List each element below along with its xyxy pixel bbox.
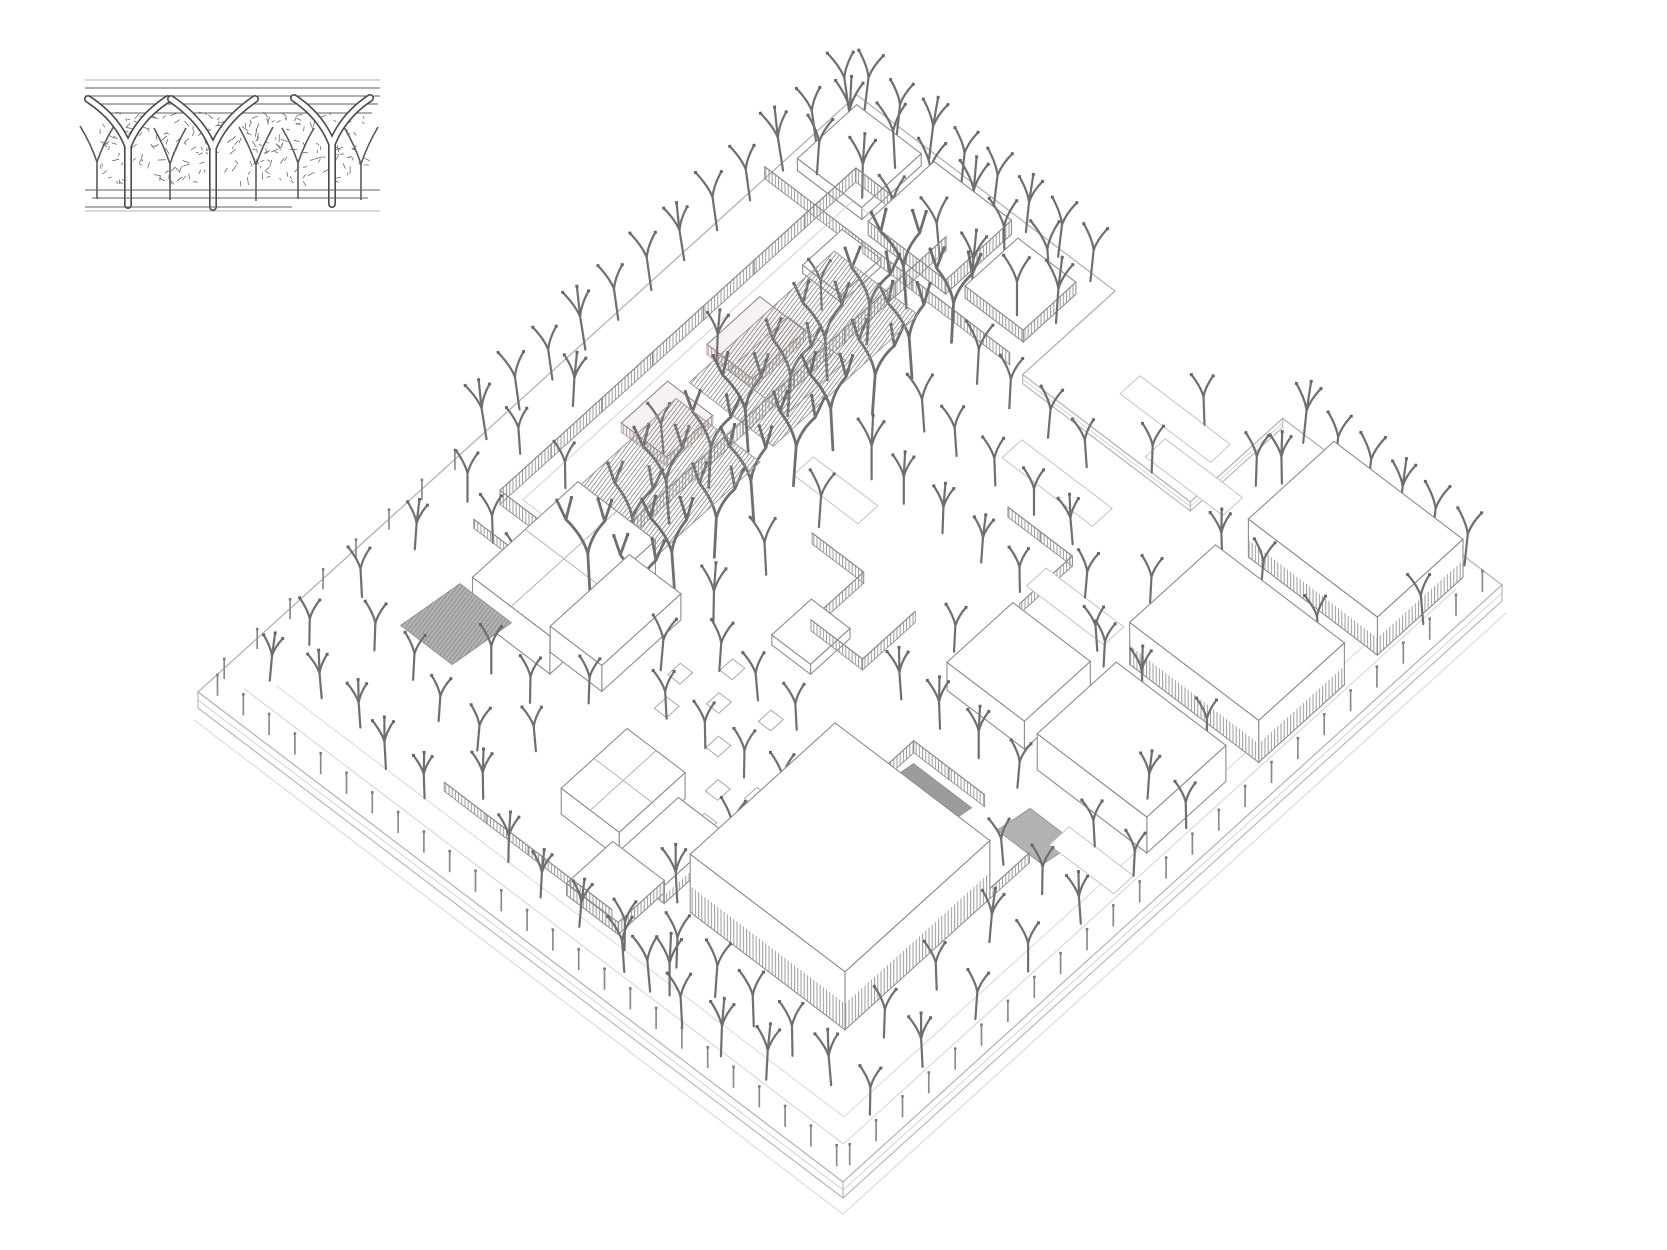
architectural-drawing-page	[0, 0, 1667, 1250]
site-axonometric	[194, 48, 1506, 1214]
inset-section-sketch	[80, 80, 380, 211]
axonometric-site-drawing	[0, 0, 1667, 1250]
